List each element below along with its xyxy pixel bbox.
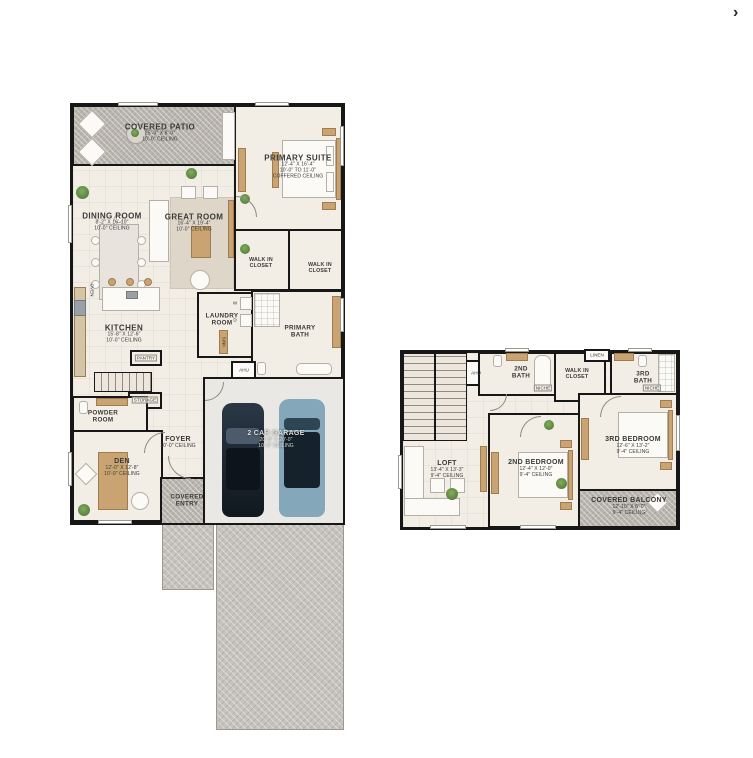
powder-vanity: [96, 398, 128, 406]
den-chair: [131, 492, 149, 510]
dining-chair: [91, 236, 100, 245]
room-name: BATH: [285, 332, 316, 339]
shower: [254, 293, 280, 327]
room-name: BATH: [512, 373, 530, 380]
stair-divider: [434, 353, 436, 441]
bar-stool: [108, 278, 116, 286]
plant: [556, 478, 567, 489]
nightstand: [560, 502, 572, 510]
plant: [446, 488, 458, 500]
linen-label: LINEN: [589, 353, 605, 358]
foyer-label: FOYER 10'-0" CEILING: [160, 436, 196, 450]
loft-label: LOFT 13'-4" X 13'-3" 9'-4" CEILING: [430, 460, 463, 480]
window: [340, 126, 344, 166]
ottoman: [430, 478, 445, 493]
window: [628, 348, 652, 352]
room-name: ROOM: [88, 417, 118, 424]
powder-room-label: POWDER ROOM: [88, 410, 118, 425]
washer-label: W: [232, 301, 238, 306]
toilet: [257, 362, 266, 375]
plant: [240, 244, 250, 254]
window: [505, 348, 529, 352]
dryer: [240, 314, 252, 327]
toilet: [493, 355, 502, 367]
room-ceiling: COFFERED CEILING: [264, 175, 331, 181]
dryer-label: D: [232, 318, 237, 323]
nightstand: [660, 400, 672, 408]
ahu-label: AHU: [238, 368, 250, 373]
window: [118, 102, 158, 106]
dining-chair: [137, 258, 146, 267]
room-ceiling: 10'-0" CEILING: [160, 444, 196, 450]
dining-room-label: DINING ROOM 8'-2" X 16'-10" 10'-0" CEILI…: [82, 211, 142, 232]
third-bedroom-label: 3RD BEDROOM 12'-6" X 13'-2" 9'-4" CEILIN…: [605, 436, 661, 456]
covered-patio-label: COVERED PATIO 25'-0" X 8'-0" 10'-0" CEIL…: [125, 122, 195, 143]
storage-label: STORAGE: [132, 397, 158, 404]
window: [98, 520, 132, 524]
loft-console: [480, 446, 487, 492]
toilet: [79, 401, 88, 414]
dining-chair: [137, 236, 146, 245]
room-name: ENTRY: [170, 501, 203, 508]
walk-in-closet-a-label: WALK IN CLOSET: [249, 257, 273, 270]
primary-suite-label: PRIMARY SUITE 12'-4" X 16'-4" 10'-0" TO …: [264, 153, 331, 180]
nightstand: [322, 202, 336, 210]
room-ceiling: 10'-0" CEILING: [104, 472, 140, 478]
headboard: [668, 410, 673, 460]
covered-entry-label: COVERED ENTRY: [170, 494, 203, 509]
sink-label: SINK: [222, 337, 227, 348]
pantry-label: PANTRY: [135, 355, 157, 362]
headboard: [568, 450, 573, 500]
covered-balcony-label: COVERED BALCONY 12'-10" X 6'-0" 9'-4" CE…: [591, 497, 667, 517]
dresser: [238, 148, 246, 192]
bathtub: [296, 363, 332, 375]
loft-sofa: [404, 446, 424, 504]
room-ceiling: 10'-0" CEILING: [165, 228, 224, 234]
primary-bath-label: PRIMARY BATH: [285, 325, 316, 340]
oven-label: OVEN: [90, 283, 95, 296]
window: [68, 205, 72, 243]
room-name: COVERED: [170, 494, 203, 501]
loft-sofa: [404, 498, 460, 516]
room-name: CLOSET: [565, 374, 589, 380]
stairs-first-floor: [94, 372, 152, 392]
room-name: PRIMARY: [285, 325, 316, 332]
armchair: [181, 186, 196, 199]
plant: [544, 420, 554, 430]
nightstand: [560, 440, 572, 448]
second-bath-label: 2ND BATH: [512, 366, 530, 381]
great-room-label: GREAT ROOM 16'-4" X 19'-4" 10'-0" CEILIN…: [165, 212, 224, 233]
garage-label: 2 CAR GARAGE 20'-8" X 20'-0" 10'-0" CEIL…: [247, 430, 304, 450]
room-ceiling: 9'-4" CEILING: [508, 473, 564, 479]
floorplan-page: ›: [0, 0, 753, 758]
driveway: [216, 523, 344, 730]
room-name: CLOSET: [249, 263, 273, 269]
room-ceiling: 10'-0" CEILING: [105, 339, 143, 345]
entry-walkway: [162, 523, 214, 590]
range: [74, 300, 86, 316]
room-name: 3RD: [634, 371, 652, 378]
window: [430, 525, 466, 529]
armchair: [203, 186, 218, 199]
media-console: [228, 200, 234, 258]
window: [398, 455, 402, 489]
window: [676, 415, 680, 451]
den-label: DEN 12'-0" X 12'-8" 10'-0" CEILING: [104, 458, 140, 478]
washer: [240, 297, 252, 310]
room-ceiling: 9'-4" CEILING: [591, 511, 667, 517]
bath-vanity: [506, 353, 528, 361]
room-name: 2ND: [512, 366, 530, 373]
room-name: CLOSET: [308, 268, 332, 274]
room-ceiling: 10'-0" CEILING: [82, 227, 142, 233]
niche-label: NICHE: [643, 385, 661, 392]
niche-label: NICHE: [534, 385, 552, 392]
plant: [78, 504, 90, 516]
second-bedroom-label: 2ND BEDROOM 12'-4" X 12'-0" 9'-4" CEILIN…: [508, 459, 564, 479]
dresser: [581, 418, 589, 460]
window: [68, 452, 72, 486]
car-roof: [226, 448, 260, 490]
window: [520, 525, 556, 529]
car-windshield: [284, 418, 320, 430]
accent-chair: [190, 270, 210, 290]
patio-sofa: [222, 112, 235, 160]
plant: [76, 186, 89, 199]
nightstand: [660, 462, 672, 470]
nightstand: [322, 128, 336, 136]
room-ceiling: 10'-0" CEILING: [247, 444, 304, 450]
island-sink: [126, 291, 138, 299]
bar-stool: [144, 278, 152, 286]
dresser: [491, 452, 499, 494]
window: [255, 102, 289, 106]
room-ceiling: 10'-0" CEILING: [125, 138, 195, 144]
window: [340, 298, 344, 332]
kitchen-label: KITCHEN 15'-8" X 12'-6" 10'-0" CEILING: [105, 323, 143, 344]
toilet: [638, 355, 647, 367]
room-ceiling: 9'-4" CEILING: [430, 474, 463, 480]
third-bath-label: 3RD BATH: [634, 371, 652, 386]
dining-chair: [91, 258, 100, 267]
walk-in-closet-b-label: WALK IN CLOSET: [308, 262, 332, 275]
room-ceiling: 9'-4" CEILING: [605, 450, 661, 456]
ahu-label-2: AHU: [470, 371, 482, 376]
plant: [186, 168, 197, 179]
bar-stool: [126, 278, 134, 286]
next-arrow-icon[interactable]: ›: [733, 4, 738, 22]
walk-in-closet-2-label: WALK IN CLOSET: [565, 368, 589, 381]
bath-vanity: [614, 353, 634, 361]
walk-in-closet-b: [288, 229, 343, 291]
room-name: POWDER: [88, 410, 118, 417]
